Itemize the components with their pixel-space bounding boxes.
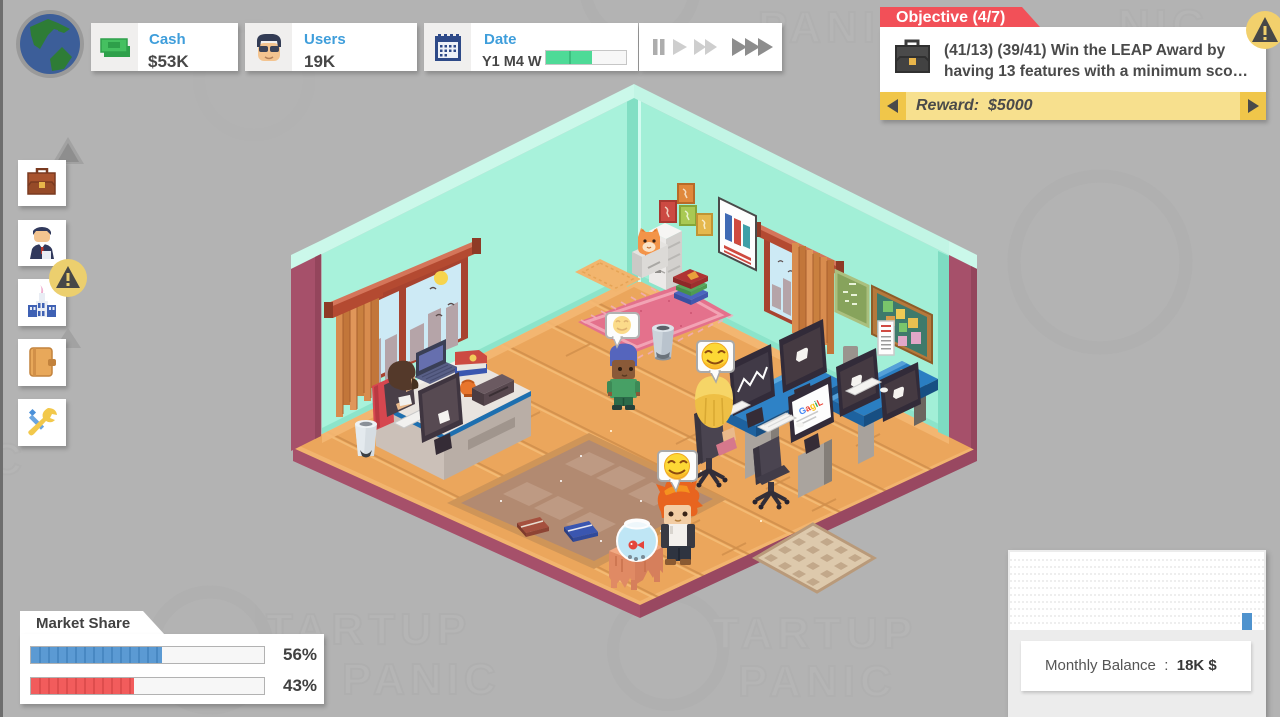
svg-text:PANIC: PANIC	[342, 655, 501, 704]
svg-text:TARTUP: TARTUP	[712, 609, 917, 658]
svg-text:PANIC: PANIC	[738, 657, 897, 706]
